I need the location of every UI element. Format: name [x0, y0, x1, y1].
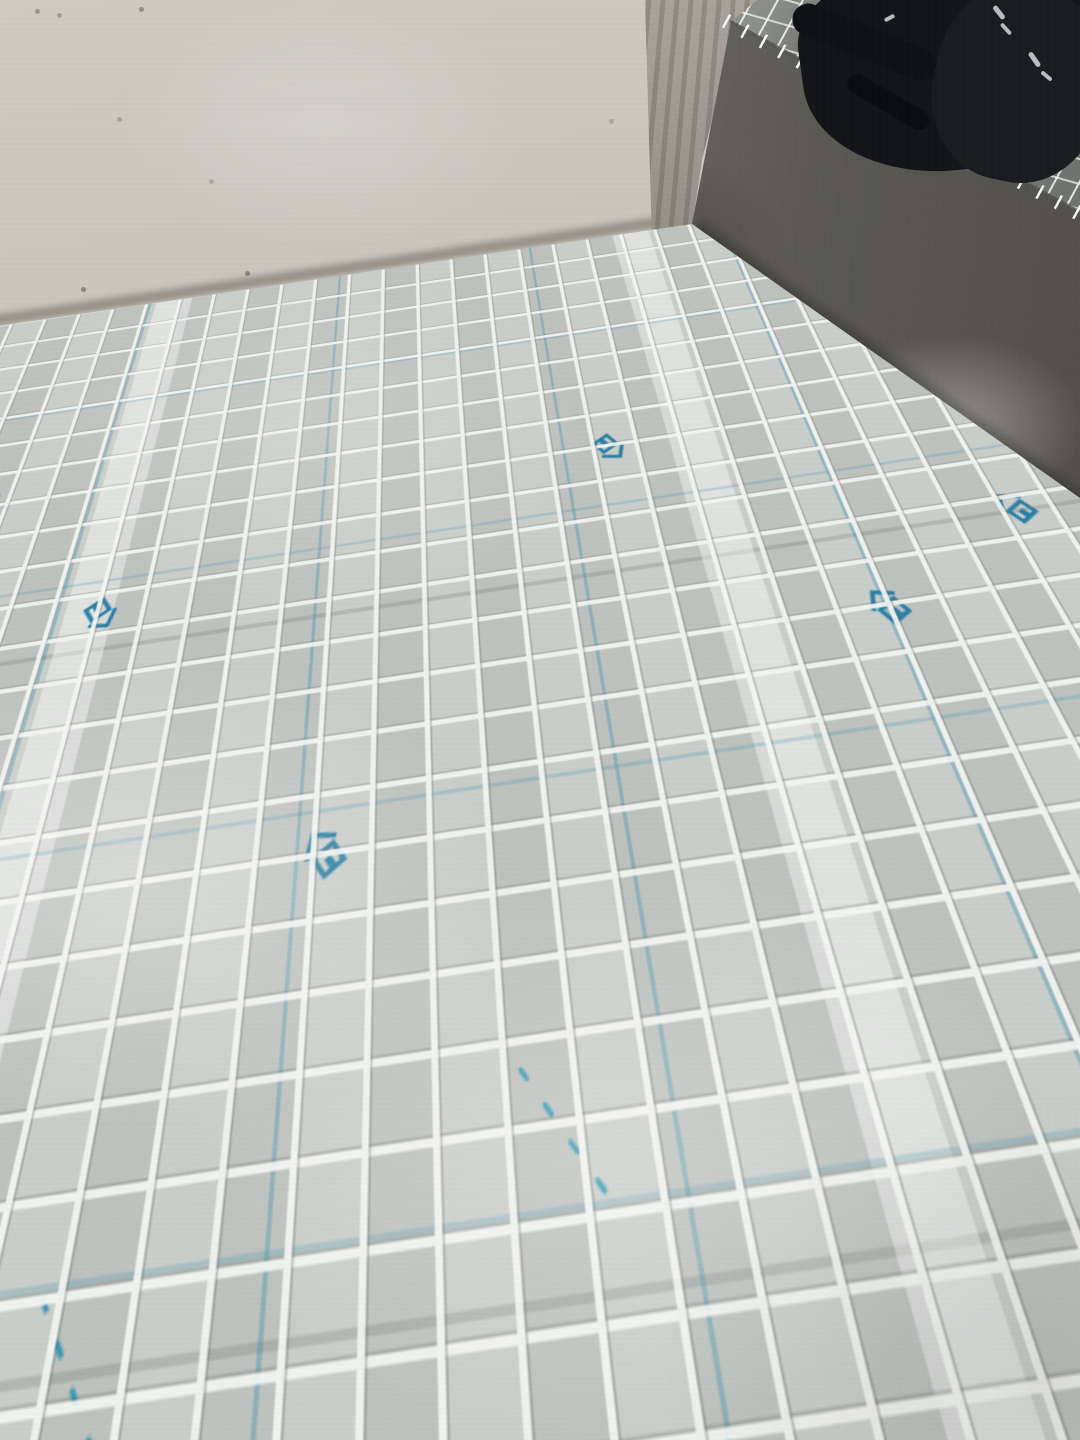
construction-photo	[0, 0, 1080, 1440]
wall-speckles	[0, 0, 3, 3]
